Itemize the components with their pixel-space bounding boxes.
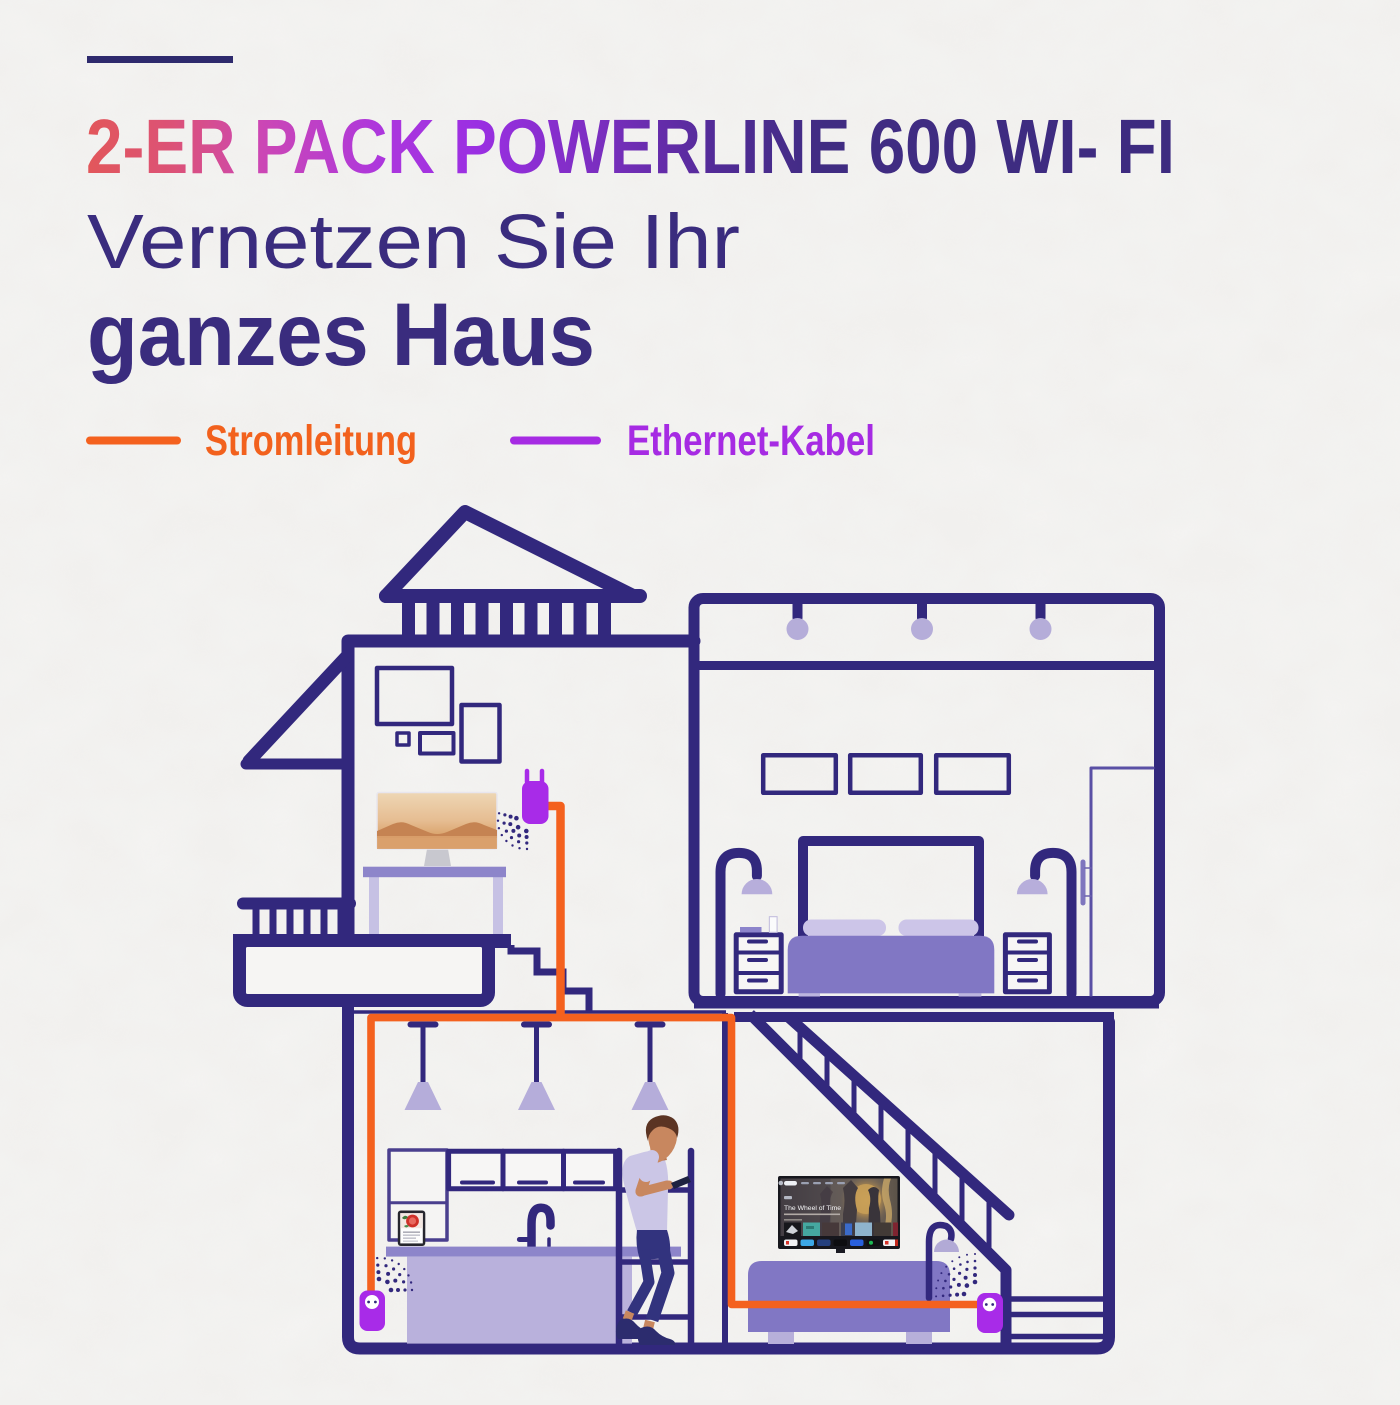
- svg-text:2-ER PACK POWERLINE 600 WI- FI: 2-ER PACK POWERLINE 600 WI- FI: [86, 104, 1175, 190]
- svg-text:Stromleitung: Stromleitung: [205, 417, 417, 465]
- svg-text:The Wheel of Time: The Wheel of Time: [784, 1205, 841, 1212]
- svg-text:Ethernet-Kabel: Ethernet-Kabel: [627, 417, 875, 465]
- svg-text:Vernetzen Sie Ihr: Vernetzen Sie Ihr: [87, 199, 740, 285]
- svg-text:ganzes Haus: ganzes Haus: [87, 284, 595, 384]
